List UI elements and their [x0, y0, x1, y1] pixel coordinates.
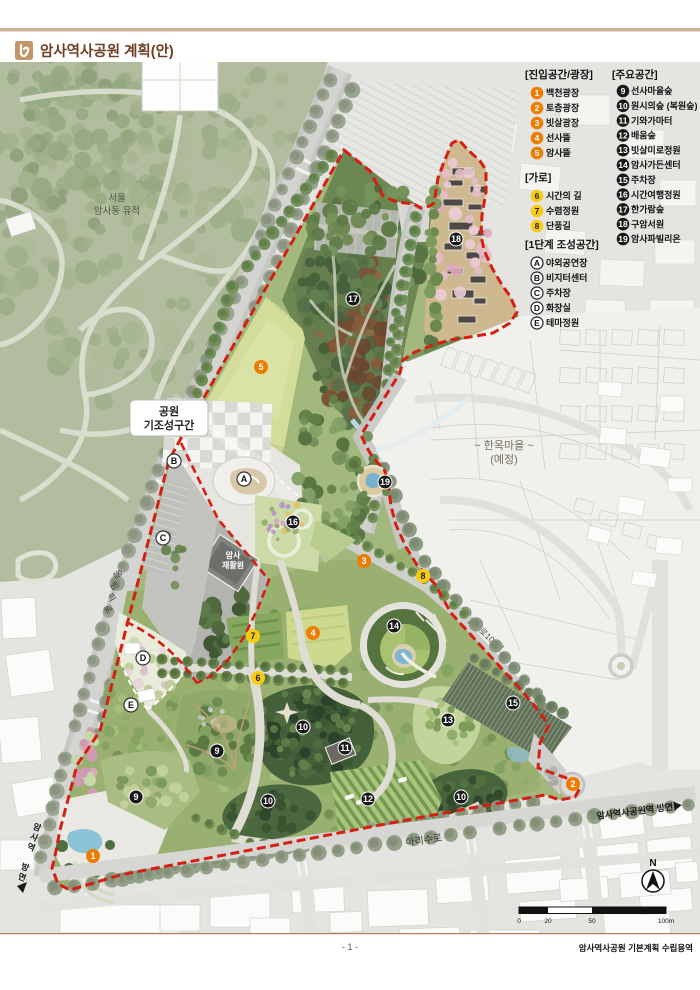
svg-text:한가람숲: 한가람숲	[631, 204, 664, 215]
svg-text:100m: 100m	[658, 918, 674, 925]
svg-text:B: B	[171, 456, 178, 466]
svg-text:1: 1	[535, 88, 540, 98]
svg-text:빗살광장: 빗살광장	[546, 117, 580, 128]
svg-text:배움숲: 배움숲	[631, 130, 656, 141]
svg-text:15: 15	[618, 175, 628, 185]
svg-text:토층광장: 토층광장	[546, 102, 580, 113]
svg-text:1: 1	[90, 851, 95, 861]
svg-text:E: E	[128, 700, 134, 710]
svg-text:4: 4	[535, 133, 540, 143]
svg-text:8: 8	[420, 571, 425, 581]
svg-text:13: 13	[443, 715, 453, 725]
svg-text:시간의 길: 시간의 길	[546, 190, 582, 201]
svg-text:17: 17	[348, 294, 358, 304]
svg-text:8: 8	[535, 221, 540, 231]
svg-text:9: 9	[621, 86, 626, 96]
svg-text:C: C	[534, 288, 540, 298]
svg-text:19: 19	[618, 234, 628, 244]
svg-text:16: 16	[288, 517, 298, 527]
svg-text:9: 9	[214, 746, 219, 756]
svg-text:암사역사공원 계획(안): 암사역사공원 계획(안)	[40, 42, 174, 60]
svg-text:11: 11	[619, 116, 628, 126]
svg-text:기조성구간: 기조성구간	[144, 418, 195, 432]
svg-text:3: 3	[535, 118, 540, 128]
svg-text:50: 50	[588, 918, 596, 925]
svg-text:7: 7	[535, 206, 540, 216]
svg-text:11: 11	[340, 743, 350, 753]
svg-text:20: 20	[544, 918, 552, 925]
svg-text:~ 한옥마을 ~: ~ 한옥마을 ~	[474, 439, 533, 452]
svg-text:6: 6	[255, 673, 260, 683]
svg-text:야외공연장: 야외공연장	[546, 257, 588, 268]
svg-text:재활원: 재활원	[222, 560, 244, 570]
svg-text:14: 14	[618, 160, 628, 170]
svg-text:A: A	[241, 474, 248, 484]
svg-text:선사뜰: 선사뜰	[546, 132, 571, 143]
svg-text:17: 17	[618, 204, 628, 214]
svg-text:암사파빌리온: 암사파빌리온	[631, 233, 681, 244]
svg-text:수렴정원: 수렴정원	[546, 205, 579, 216]
svg-text:시간여행정원: 시간여행정원	[631, 189, 681, 200]
svg-text:공원: 공원	[159, 404, 179, 418]
svg-text:19: 19	[380, 477, 390, 487]
svg-text:주차장: 주차장	[546, 287, 572, 298]
svg-text:N: N	[649, 858, 656, 869]
svg-text:7: 7	[250, 631, 255, 641]
svg-text:테마정원: 테마정원	[546, 317, 579, 328]
svg-text:주차장: 주차장	[631, 174, 657, 185]
svg-text:암사동 유적: 암사동 유적	[94, 205, 140, 217]
svg-text:[1단계 조성공간]: [1단계 조성공간]	[525, 238, 599, 251]
svg-text:5: 5	[535, 148, 540, 158]
svg-text:구암서원: 구암서원	[631, 218, 664, 229]
svg-text:10: 10	[618, 101, 628, 111]
svg-text:암사뜰: 암사뜰	[546, 147, 571, 158]
svg-text:10: 10	[298, 722, 308, 732]
svg-text:4: 4	[310, 628, 315, 638]
svg-text:14: 14	[389, 621, 399, 631]
svg-text:빗살미로정원: 빗살미로정원	[631, 144, 681, 155]
svg-text:D: D	[534, 303, 540, 313]
svg-text:백천광장: 백천광장	[546, 87, 580, 98]
svg-text:(예정): (예정)	[490, 453, 518, 466]
svg-text:암사: 암사	[226, 550, 241, 560]
svg-text:D: D	[140, 653, 147, 663]
svg-text:비지터센터: 비지터센터	[546, 272, 587, 283]
svg-text:단풍길: 단풍길	[546, 220, 571, 231]
svg-text:10: 10	[263, 796, 273, 806]
svg-text:원시의숲 (복원숲): 원시의숲 (복원숲)	[631, 100, 697, 111]
svg-text:기와가마터: 기와가마터	[631, 115, 672, 126]
svg-text:화장실: 화장실	[546, 302, 571, 313]
svg-text:18: 18	[451, 234, 461, 244]
svg-text:A: A	[534, 258, 540, 268]
svg-text:서울: 서울	[108, 193, 126, 204]
svg-text:E: E	[534, 318, 540, 328]
svg-text:[진입공간/광장]: [진입공간/광장]	[525, 68, 593, 81]
svg-text:2: 2	[570, 779, 575, 789]
svg-text:[주요공간]: [주요공간]	[612, 68, 658, 81]
svg-text:6: 6	[535, 191, 540, 201]
svg-text:16: 16	[618, 190, 628, 200]
svg-text:0: 0	[517, 918, 521, 925]
svg-text:15: 15	[508, 698, 518, 708]
svg-text:3: 3	[361, 556, 366, 566]
svg-text:[가로]: [가로]	[525, 171, 551, 184]
svg-text:13: 13	[618, 145, 628, 155]
svg-text:9: 9	[133, 792, 138, 802]
svg-text:- 1 -: - 1 -	[342, 942, 358, 952]
svg-text:C: C	[160, 533, 167, 543]
svg-text:B: B	[534, 273, 540, 283]
svg-text:12: 12	[363, 794, 373, 804]
svg-text:암사가든센터: 암사가든센터	[631, 159, 681, 170]
svg-text:12: 12	[618, 130, 628, 140]
svg-text:암사역사공원 기본계획 수립용역: 암사역사공원 기본계획 수립용역	[579, 943, 693, 953]
svg-text:18: 18	[618, 219, 628, 229]
svg-text:선사마을숲: 선사마을숲	[631, 85, 672, 96]
svg-text:5: 5	[258, 362, 263, 372]
svg-text:2: 2	[535, 103, 540, 113]
svg-text:10: 10	[456, 792, 466, 802]
